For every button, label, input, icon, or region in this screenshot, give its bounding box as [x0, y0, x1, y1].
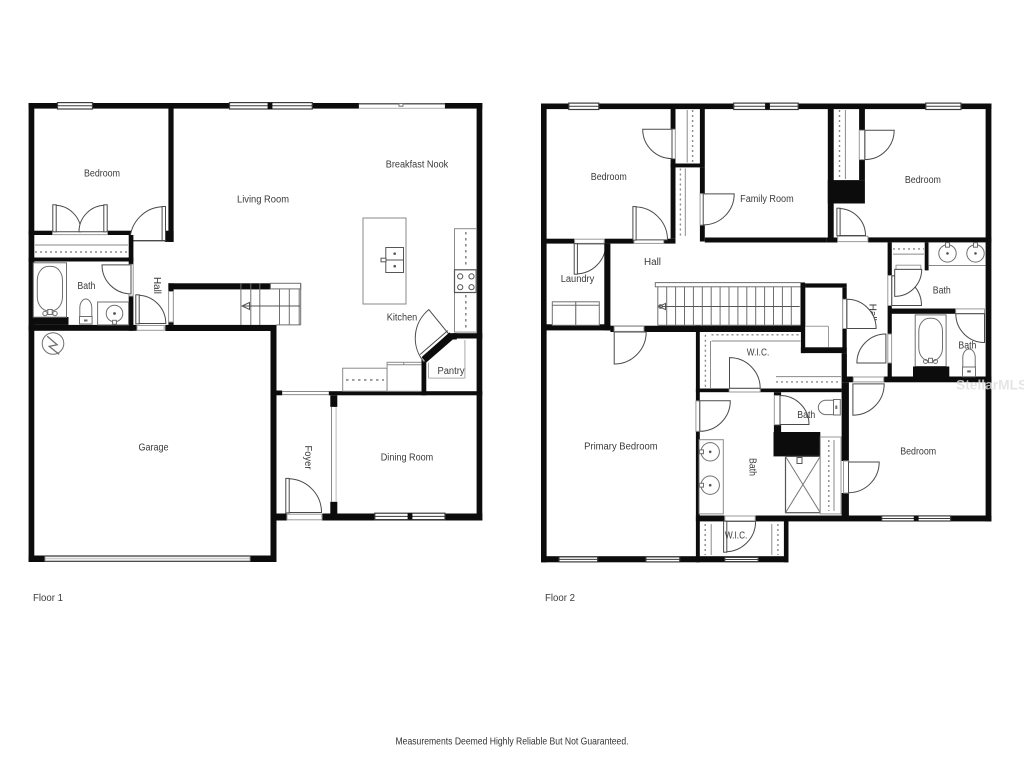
svg-text:Bath: Bath [746, 458, 757, 476]
svg-text:Laundry: Laundry [561, 274, 595, 285]
svg-text:Garage: Garage [139, 443, 169, 454]
svg-text:StellarMLS: StellarMLS [956, 377, 1024, 392]
svg-text:Floor 1: Floor 1 [33, 593, 63, 604]
svg-text:Bedroom: Bedroom [591, 172, 627, 183]
svg-text:Bath: Bath [797, 410, 815, 421]
svg-text:Primary Bedroom: Primary Bedroom [584, 441, 658, 452]
svg-text:Hall: Hall [644, 257, 661, 268]
svg-text:W.I.C.: W.I.C. [725, 531, 748, 542]
svg-text:Breakfast Nook: Breakfast Nook [386, 160, 449, 171]
svg-text:Living Room: Living Room [237, 195, 289, 206]
svg-text:Kitchen: Kitchen [387, 313, 418, 324]
svg-text:W.I.C.: W.I.C. [747, 347, 770, 358]
svg-text:Bath: Bath [933, 286, 951, 297]
svg-text:Bedroom: Bedroom [84, 169, 120, 180]
svg-text:Hall: Hall [151, 277, 162, 294]
svg-text:Pantry: Pantry [438, 366, 465, 377]
svg-text:Dining Room: Dining Room [381, 453, 434, 464]
svg-text:Bath: Bath [77, 281, 95, 292]
svg-text:Bedroom: Bedroom [900, 447, 936, 458]
svg-text:Family Room: Family Room [740, 194, 794, 205]
svg-text:Foyer: Foyer [302, 446, 313, 471]
svg-text:Bedroom: Bedroom [905, 175, 941, 186]
svg-text:Measurements Deemed Highly Rel: Measurements Deemed Highly Reliable But … [396, 735, 629, 747]
svg-text:Floor 2: Floor 2 [545, 593, 575, 604]
